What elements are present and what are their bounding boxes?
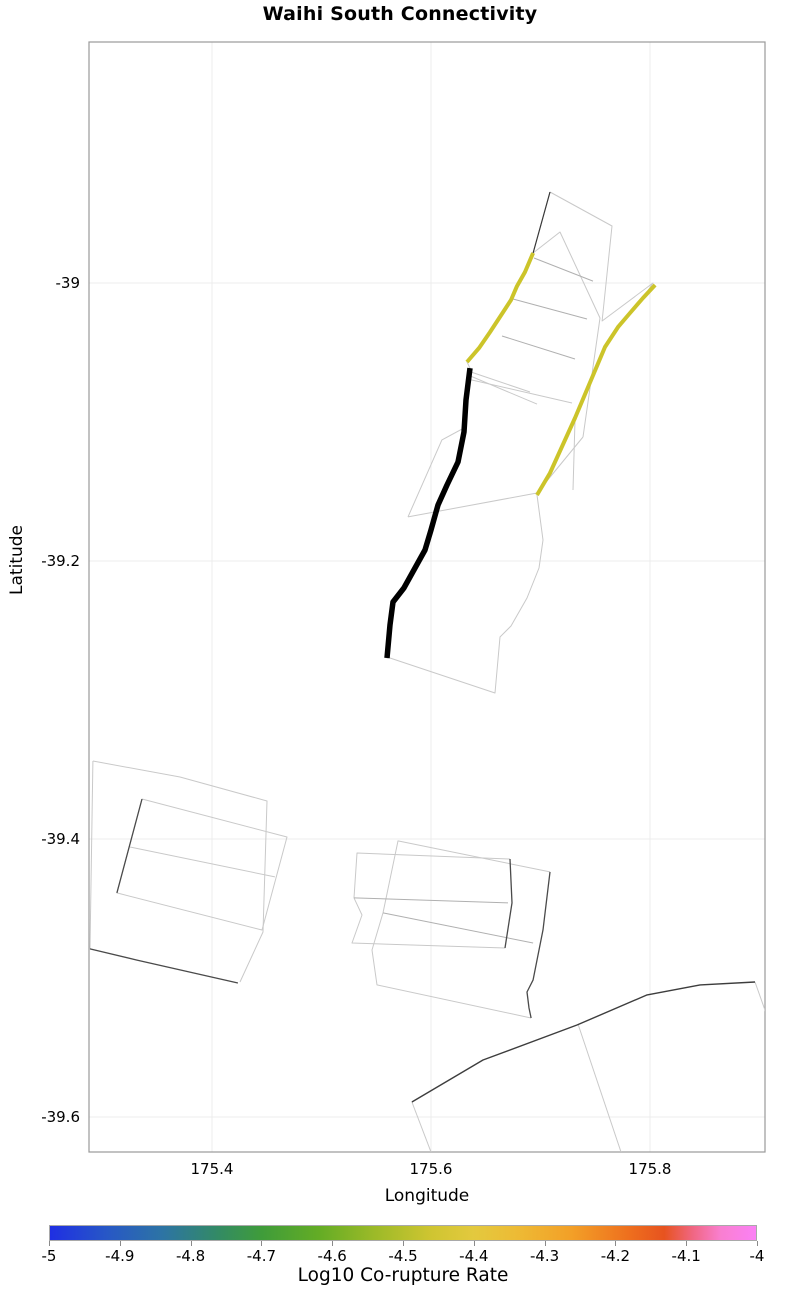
fault-line-lowerleft-mid-line — [130, 847, 275, 877]
fault-line-lowermid-quad-2 — [372, 841, 550, 1018]
fault-line-upper-inner-edge — [533, 232, 600, 437]
colorbar-tick-label: -4.6 — [318, 1247, 347, 1265]
fault-line-bottomright-edge-right — [755, 982, 766, 1013]
y-axis-label: Latitude — [7, 525, 27, 595]
colorbar-tick-label: -4.9 — [105, 1247, 134, 1265]
colorbar-tick-labels: -5-4.9-4.8-4.7-4.6-4.5-4.4-4.3-4.2-4.1-4 — [49, 1247, 757, 1265]
fault-line-upper-cross-c — [502, 336, 575, 359]
colorbar-label: Log10 Co-rupture Rate — [298, 1265, 509, 1286]
x-tick-label: 175.8 — [629, 1160, 672, 1178]
fault-line-upper-top-dark-segment — [533, 192, 550, 253]
colorbar-tickmark — [403, 1241, 404, 1246]
colorbar-tickmark — [474, 1241, 475, 1246]
colorbar-tick-label: -4.1 — [672, 1247, 701, 1265]
x-tick-label: 175.6 — [410, 1160, 453, 1178]
y-tick-label: -39 — [56, 274, 81, 292]
colorbar-tick-label: -4.8 — [176, 1247, 205, 1265]
colorbar-tick-label: -4.2 — [601, 1247, 630, 1265]
fault-line-connected-fault-east — [537, 285, 655, 495]
fault-line-connected-fault-west — [467, 253, 533, 362]
colorbar-tickmark — [332, 1241, 333, 1246]
colorbar-tickmark — [261, 1241, 262, 1246]
fault-line-lowerleft-quad-b-trace — [117, 799, 142, 893]
fault-line-lowermid-quad-1-trace — [505, 859, 512, 948]
y-tick-label: -39.6 — [41, 1108, 80, 1126]
fault-line-upper-cross-a — [534, 258, 593, 281]
fault-line-lowerleft-quad-b — [117, 799, 287, 930]
colorbar-tick-label: -4 — [750, 1247, 765, 1265]
colorbar-tickmarks — [49, 1241, 757, 1246]
fault-line-upper-fan-2 — [468, 375, 537, 404]
x-tick-label: 175.4 — [190, 1160, 233, 1178]
fault-line-bottomright-edge-left — [412, 1102, 431, 1152]
colorbar-tick-label: -4.7 — [247, 1247, 276, 1265]
fault-line-bottomright-trace — [412, 982, 755, 1102]
colorbar-tickmark — [757, 1241, 758, 1246]
fault-line-upper-fan-3 — [468, 379, 572, 403]
colorbar-tickmark — [49, 1241, 50, 1246]
plot-border — [89, 42, 765, 1152]
colorbar-tickmark — [686, 1241, 687, 1246]
colorbar-tick-label: -5 — [42, 1247, 57, 1265]
colorbar-tickmark — [615, 1241, 616, 1246]
map-plot-canvas — [0, 0, 800, 1305]
colorbar-tick-label: -4.5 — [388, 1247, 417, 1265]
fault-line-upper-network-outline — [387, 192, 653, 693]
y-tick-label: -39.4 — [41, 830, 80, 848]
fault-line-lowermid-quad-2-trace — [527, 872, 550, 1018]
fault-line-lowerleft-trace — [90, 949, 238, 983]
fault-line-upper-cross-d — [408, 493, 537, 517]
colorbar-gradient — [49, 1225, 757, 1241]
fault-line-lowerleft-quad-a — [93, 761, 267, 982]
colorbar-tickmark — [120, 1241, 121, 1246]
fault-line-lowermid-mid-2 — [383, 913, 533, 943]
colorbar-tickmark — [191, 1241, 192, 1246]
colorbar-tick-label: -4.4 — [459, 1247, 488, 1265]
fault-line-lowerleft-quad-a-left — [90, 761, 93, 949]
x-axis-tick-labels: 175.4175.6175.8 — [0, 1160, 800, 1180]
fault-lines-layer — [90, 192, 766, 1152]
colorbar-tickmark — [545, 1241, 546, 1246]
figure: Waihi South Connectivity Latitude Longit… — [0, 0, 800, 1305]
x-axis-label: Longitude — [385, 1186, 470, 1206]
fault-line-bottomright-edge-mid — [578, 1024, 621, 1152]
fault-line-upper-cross-b — [513, 299, 587, 319]
y-tick-label: -39.2 — [41, 552, 80, 570]
fault-line-upper-inner-vertical — [573, 420, 575, 490]
colorbar-tick-label: -4.3 — [530, 1247, 559, 1265]
